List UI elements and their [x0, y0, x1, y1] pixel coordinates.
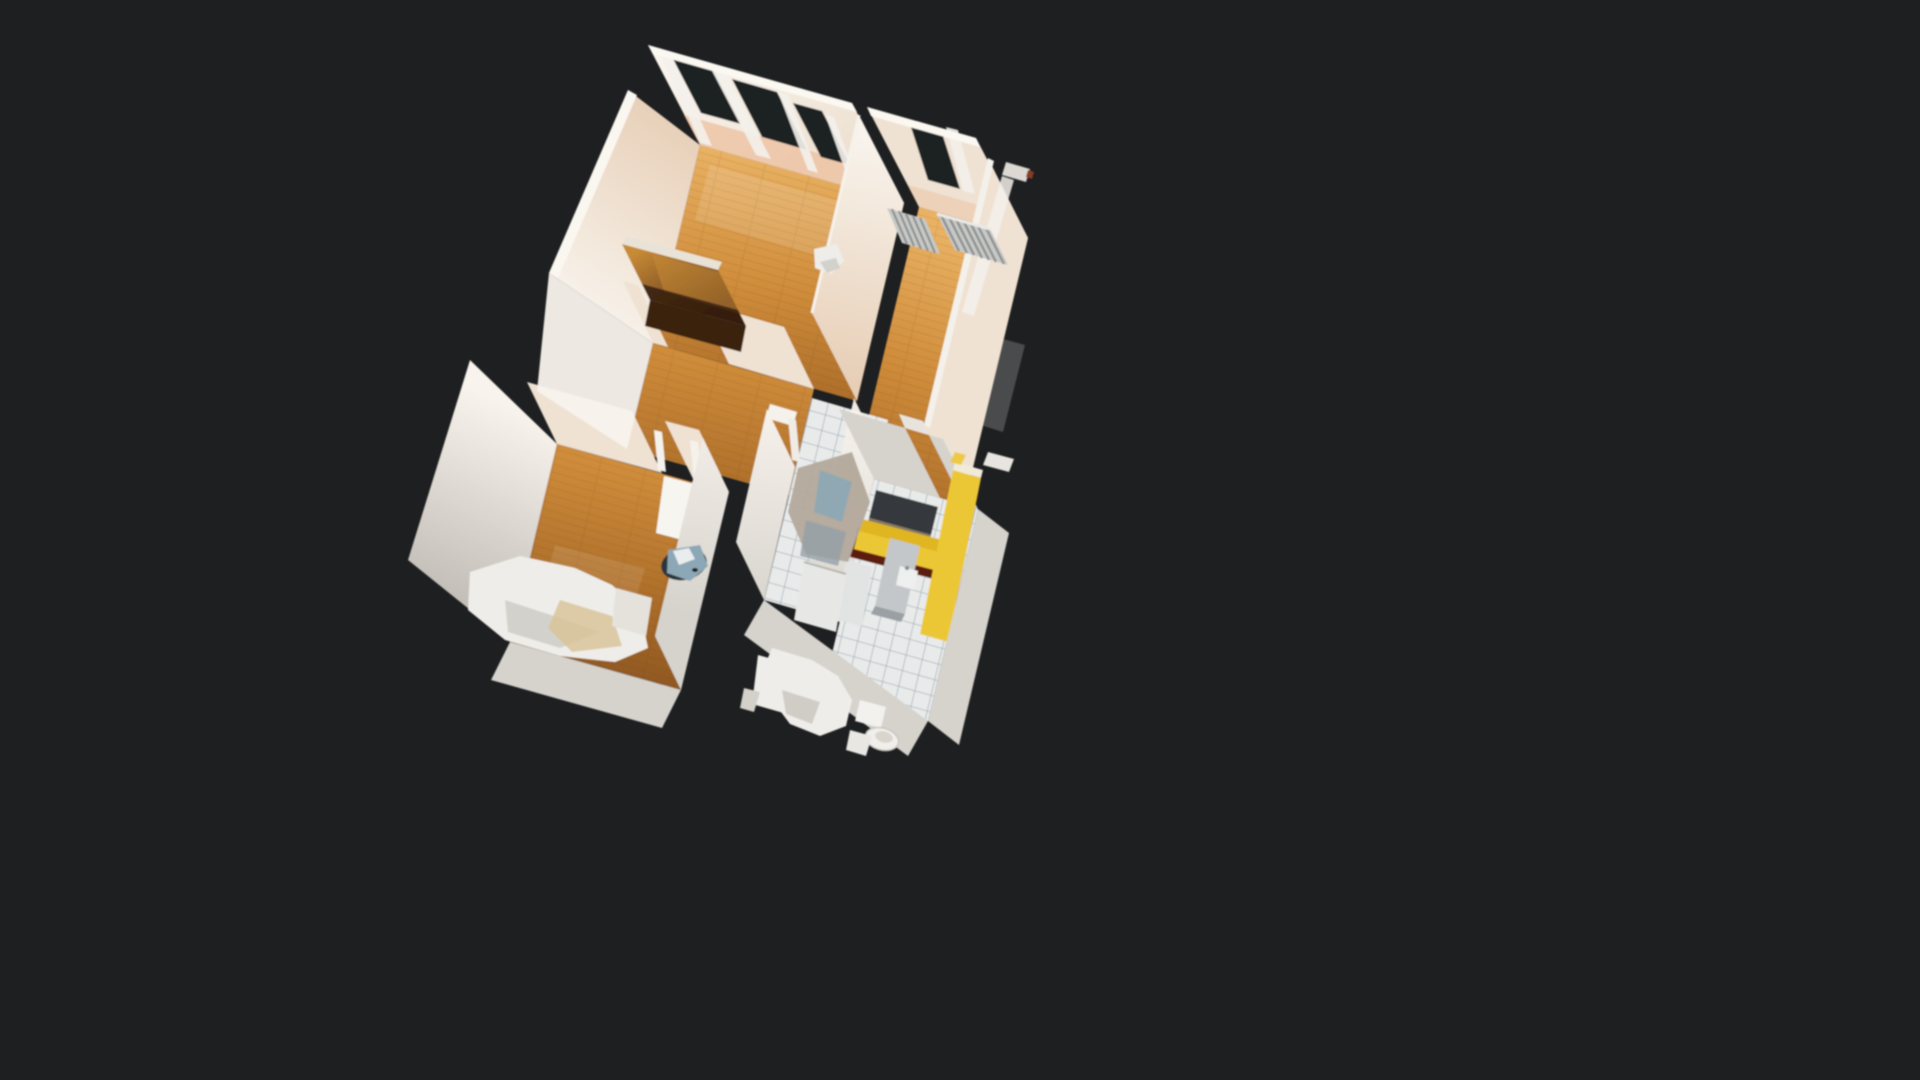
scan-hole-dark-dot: [692, 568, 698, 572]
dollhouse-3d-viewport[interactable]: [0, 0, 1920, 1080]
kitchen-faucet: [905, 566, 909, 570]
